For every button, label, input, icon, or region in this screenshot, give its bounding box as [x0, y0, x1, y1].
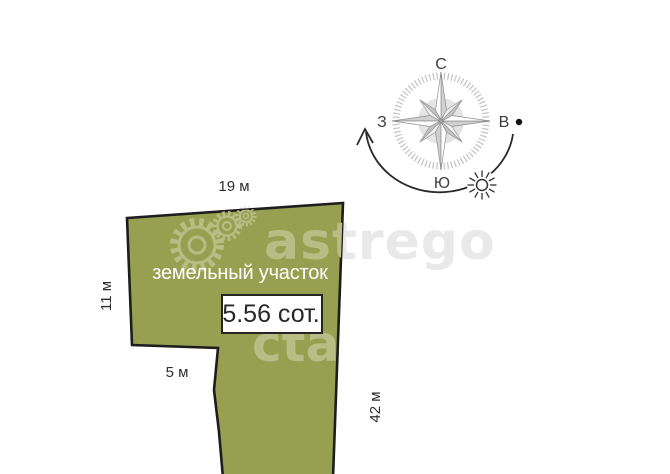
compass-west-label: З [377, 114, 387, 131]
compass-east-label: В [499, 114, 510, 131]
orientation-arrowhead [357, 129, 373, 145]
sun-icon [467, 170, 497, 200]
east-dot [516, 119, 522, 125]
compass-rose [392, 72, 490, 170]
dim-label-top: 19 м [218, 178, 249, 195]
compass-south-label: Ю [434, 175, 450, 192]
dim-label-right: 42 м [367, 391, 384, 422]
dim-label-left: 11 м [98, 281, 115, 311]
compass-north-label: С [435, 56, 447, 73]
plot-title: земельный участок [152, 262, 328, 284]
dim-label-bottom: 5 м [166, 364, 189, 381]
area-label: 5.56 сот. [222, 300, 319, 328]
land-plot-scheme: astrego cta [0, 0, 670, 474]
